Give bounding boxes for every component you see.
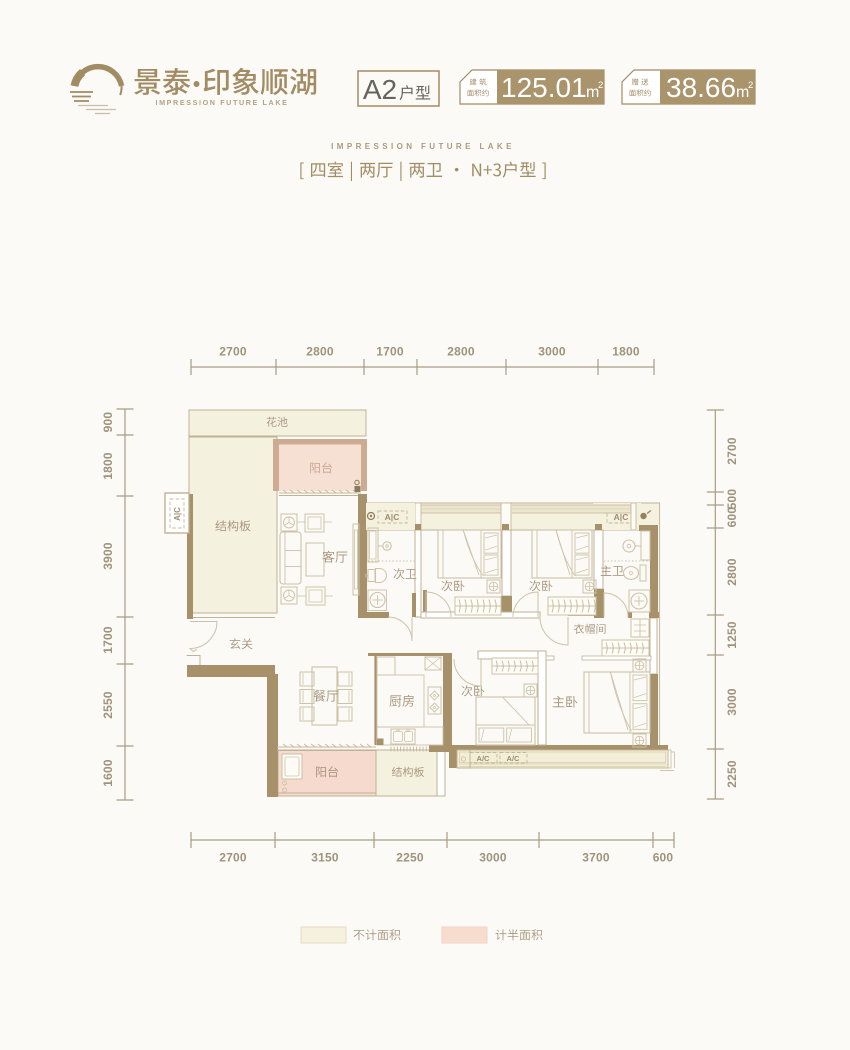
svg-text:2250: 2250: [396, 851, 424, 865]
svg-text:A/C: A/C: [477, 754, 491, 763]
svg-text:2250: 2250: [725, 760, 739, 788]
svg-text:1800: 1800: [101, 452, 115, 480]
svg-text:A|C: A|C: [614, 512, 629, 522]
svg-text:2550: 2550: [101, 691, 115, 719]
svg-text:900: 900: [101, 412, 115, 433]
svg-text:2700: 2700: [219, 345, 247, 359]
svg-text:600: 600: [725, 507, 739, 528]
svg-text:2800: 2800: [447, 345, 475, 359]
svg-text:3000: 3000: [479, 851, 507, 865]
svg-text:3900: 3900: [101, 542, 115, 570]
svg-text:1250: 1250: [725, 621, 739, 649]
svg-text:A|C: A|C: [173, 507, 182, 521]
svg-text:600: 600: [653, 851, 674, 865]
svg-text:IMPRESSION FUTURE LAKE: IMPRESSION FUTURE LAKE: [155, 98, 288, 107]
svg-text:2: 2: [598, 80, 603, 91]
svg-text:2: 2: [748, 80, 753, 91]
svg-text:3000: 3000: [725, 688, 739, 716]
svg-text:2700: 2700: [219, 851, 247, 865]
svg-text:1700: 1700: [376, 345, 404, 359]
svg-text:IMPRESSION FUTURE LAKE: IMPRESSION FUTURE LAKE: [331, 142, 515, 151]
svg-text:3700: 3700: [582, 851, 610, 865]
svg-text:2700: 2700: [725, 437, 739, 465]
svg-text:A2: A2: [363, 74, 397, 105]
svg-text:125.01: 125.01: [501, 72, 587, 103]
svg-text:A|C: A|C: [385, 512, 400, 522]
svg-text:38.66: 38.66: [666, 72, 736, 103]
svg-text:A/C: A/C: [507, 754, 521, 763]
svg-text:1700: 1700: [101, 626, 115, 654]
svg-text:3000: 3000: [538, 345, 566, 359]
svg-text:2800: 2800: [306, 345, 334, 359]
svg-text:3150: 3150: [311, 851, 339, 865]
svg-text:1800: 1800: [612, 345, 640, 359]
svg-text:1600: 1600: [101, 759, 115, 787]
svg-text:2800: 2800: [725, 558, 739, 586]
svg-text:500: 500: [725, 489, 739, 510]
